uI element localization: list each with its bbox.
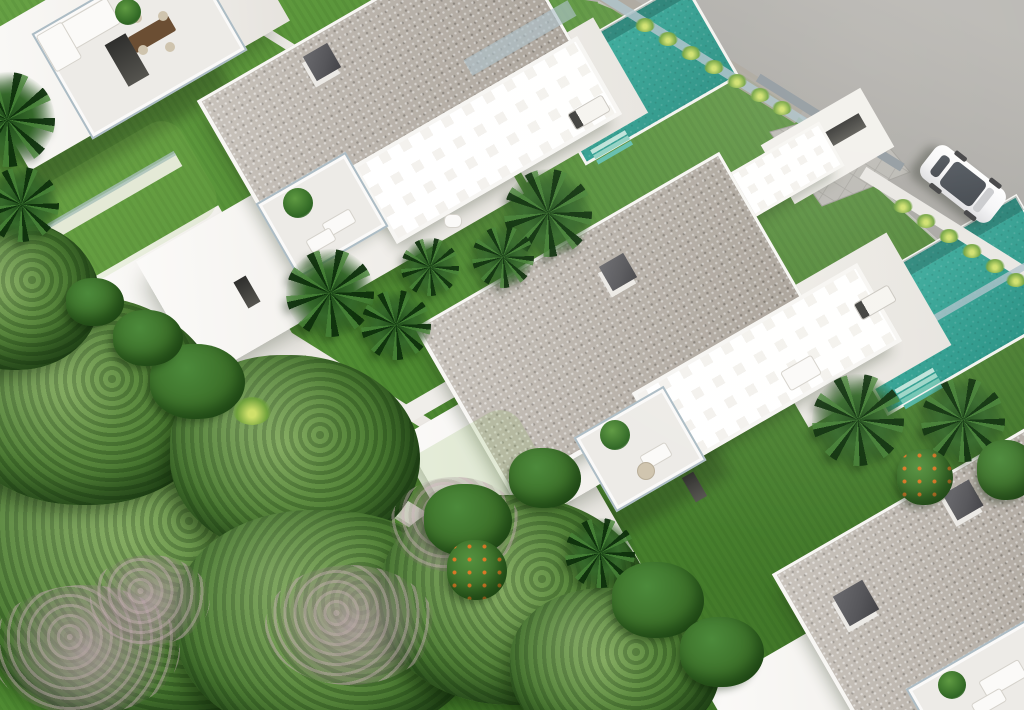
fence-plant [893,199,913,213]
dining-chair [158,11,168,21]
dining-chair [165,42,175,52]
palm-tree [812,374,904,466]
fence-plant [750,88,770,102]
fence-plant [939,229,959,243]
aerial-render [0,0,1024,710]
fence-plant [985,259,1005,273]
fence-plant [704,60,724,74]
garden-bush [977,440,1024,500]
palm-tree [361,290,431,360]
fruit-bush [447,540,507,600]
palm-tree [401,238,459,296]
terrace-plant [938,671,966,699]
fruit-bush [897,449,953,505]
fence-plant [916,214,936,228]
fence-plant [681,46,701,60]
blossom-tree [265,565,435,685]
garden-bush [509,448,581,508]
balcony-plant [283,188,313,218]
terrace-plant [115,0,141,25]
garden-bush [680,617,764,687]
fence-plant [658,32,678,46]
balcony-round-table [637,462,655,480]
garden-bush [113,310,183,366]
fence-plant [635,18,655,32]
fence-plant [772,101,792,115]
palm-tree [472,226,534,288]
fence-plant [1006,273,1024,287]
garden-sculpture [444,214,462,228]
fence-plant [727,74,747,88]
fence-plant [962,244,982,258]
balcony-plant [600,420,630,450]
garden-bush [66,278,124,326]
yellow-shrub [233,397,271,425]
dining-chair [138,45,148,55]
blossom-tree [90,555,210,645]
